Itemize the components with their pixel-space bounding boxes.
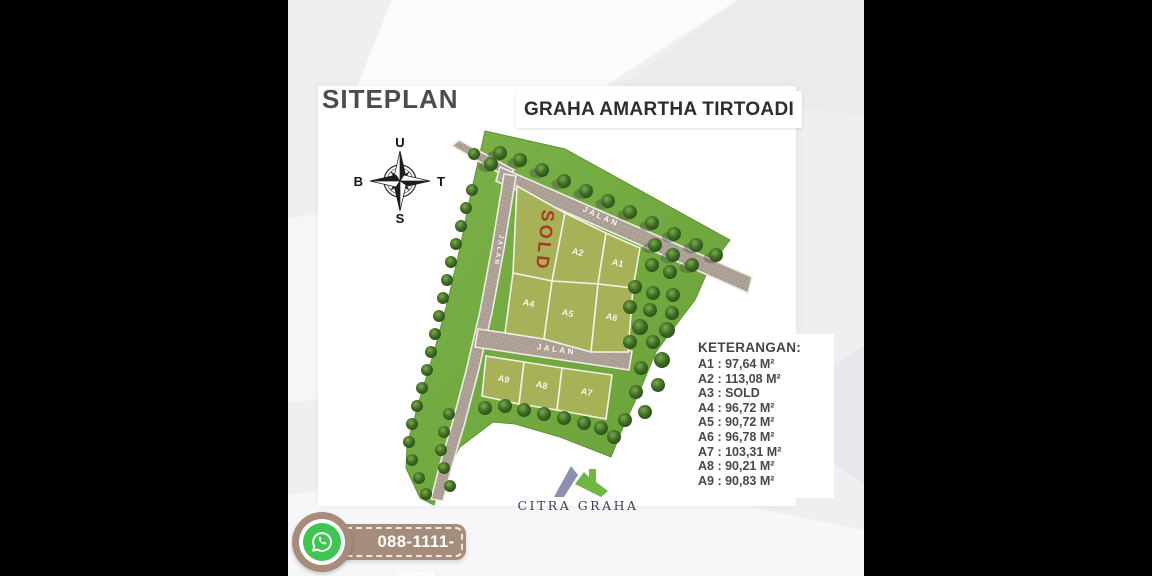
legend-item: A2 : 113,08 M² [698,372,826,387]
compass-south-label: S [396,211,405,226]
left-letterbox [0,0,288,576]
developer-logo: CITRA GRAHA [517,466,638,513]
whatsapp-icon [303,523,341,561]
legend-item: A8 : 90,21 M² [698,459,826,474]
flyer: SITEPLAN GRAHA AMARTHA TIRTOADI [0,0,1152,576]
plot-a5: A5 [544,281,598,352]
compass-west-label: B [354,174,363,189]
right-letterbox [864,0,1152,576]
logo-peak-shape [554,466,578,497]
logo-roof-shape [575,469,608,497]
legend-item: A3 : SOLD [698,386,826,401]
legend-title: KETERANGAN: [698,340,826,355]
legend-item: A4 : 96,72 M² [698,401,826,416]
whatsapp-icon-backing [299,519,345,565]
legend-item: A1 : 97,64 M² [698,357,826,372]
phone-number-pill[interactable]: 088-1111-2020 [336,524,466,560]
legend-item: A6 : 96,78 M² [698,430,826,445]
legend-item: A9 : 90,83 M² [698,474,826,489]
plot-a8: A8 [519,362,562,410]
compass-rose: U B T S [354,135,445,226]
legend: KETERANGAN: A1 : 97,64 M² A2 : 113,08 M²… [688,334,834,498]
flyer-content: SITEPLAN GRAHA AMARTHA TIRTOADI [288,0,864,576]
logo-text: CITRA GRAHA [517,498,638,513]
phone-number: 088-1111-2020 [366,524,466,560]
compass-north-label: U [395,135,404,150]
plot-a9: A9 [482,356,524,404]
legend-item: A5 : 90,72 M² [698,415,826,430]
whatsapp-icon-ring[interactable] [292,512,352,572]
whatsapp-glyph [309,529,335,555]
compass-east-label: T [437,174,445,189]
legend-item: A7 : 103,31 M² [698,445,826,460]
